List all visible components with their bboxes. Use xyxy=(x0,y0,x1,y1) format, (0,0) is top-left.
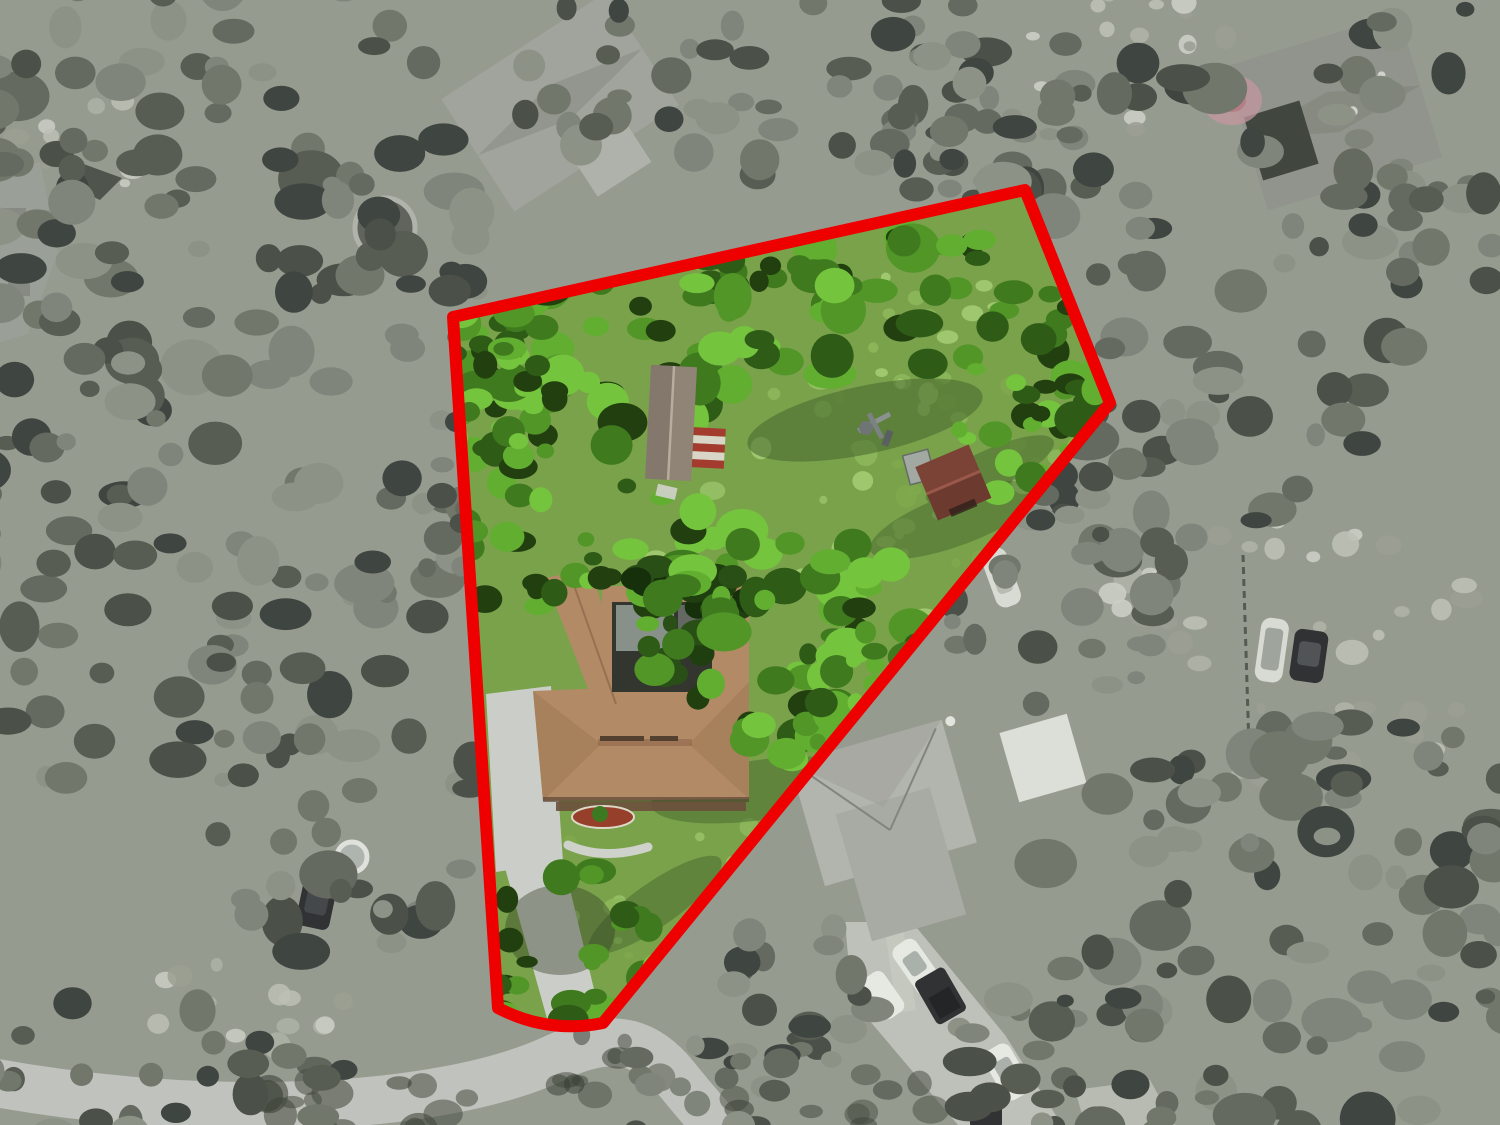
aerial-photo xyxy=(0,0,1500,1125)
ridge-vent xyxy=(650,736,678,741)
dark-car-right-field xyxy=(1288,628,1329,684)
front-eave-shadow xyxy=(543,797,749,802)
awning-stripe-red xyxy=(693,443,725,453)
striped-awning xyxy=(692,427,726,469)
garden-plant xyxy=(592,806,608,822)
awning-stripe-red xyxy=(692,459,724,469)
awning-stripe-white xyxy=(693,435,725,445)
ridge-vent xyxy=(600,736,644,741)
awning-stripe-white xyxy=(692,451,724,461)
dark-car-roof xyxy=(1297,641,1322,668)
aerial-photo-canvas xyxy=(0,0,1500,1125)
awning-stripe-red xyxy=(693,427,725,437)
play-platform xyxy=(859,421,873,435)
